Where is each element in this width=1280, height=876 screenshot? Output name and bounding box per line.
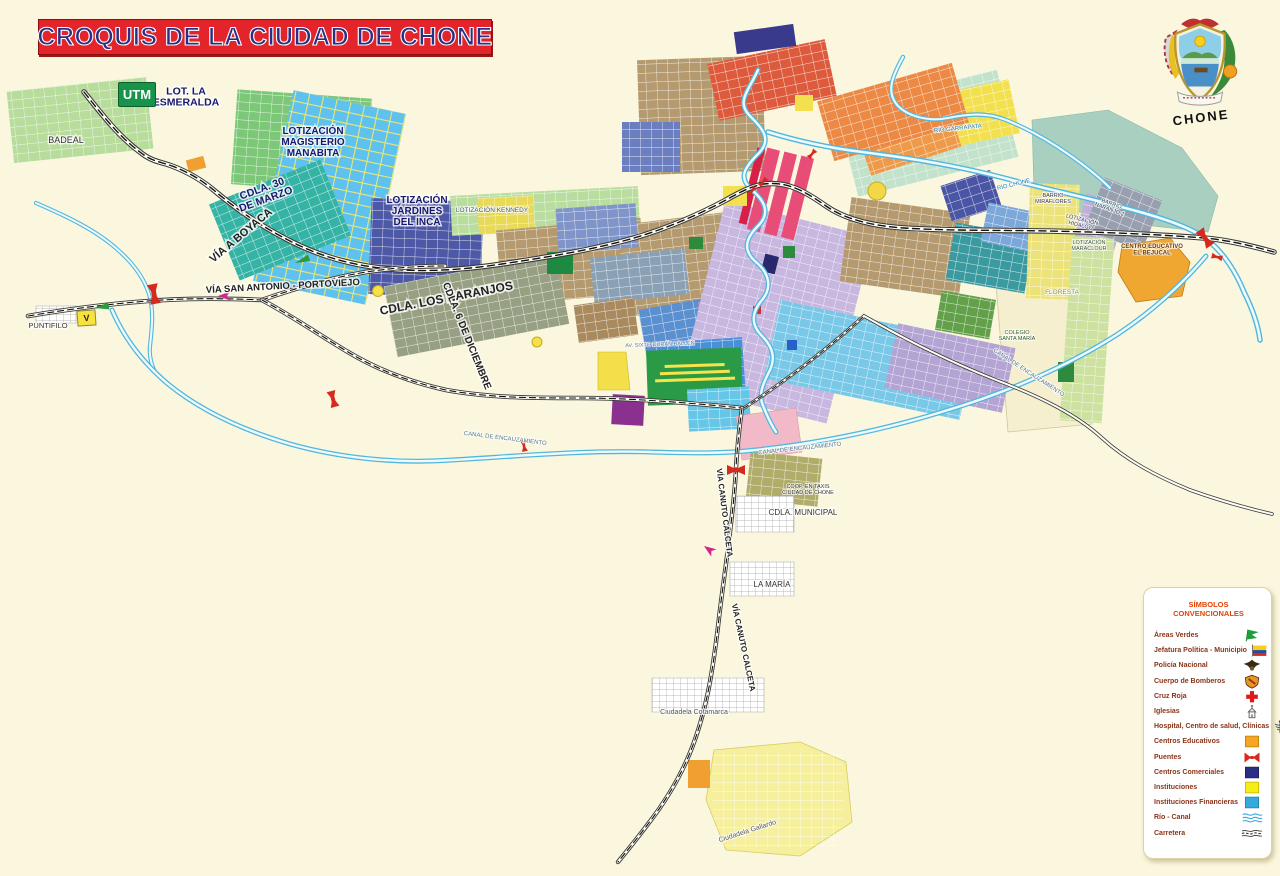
emblem-graphic bbox=[1165, 19, 1237, 106]
legend-item-label: Instituciones Financieras bbox=[1154, 799, 1238, 806]
legend-item-label: Cruz Roja bbox=[1154, 693, 1187, 700]
legend-item-label: Puentes bbox=[1154, 754, 1181, 761]
ecuador-flag-icon bbox=[1247, 643, 1269, 658]
map-label: BADEAL bbox=[48, 135, 84, 145]
direction-arrow-icon bbox=[701, 542, 716, 556]
legend-item: Hospital, Centro de salud, Clínicas bbox=[1154, 719, 1263, 734]
legend-item-label: Cuerpo de Bomberos bbox=[1154, 678, 1225, 685]
map-title-banner: CROQUIS DE LA CIUDAD DE CHONE bbox=[38, 19, 492, 55]
legend-item-label: Áreas Verdes bbox=[1154, 632, 1198, 639]
legend-item: Iglesias bbox=[1154, 704, 1263, 719]
blue-square-icon bbox=[1241, 795, 1263, 810]
legend-item-label: Río - Canal bbox=[1154, 814, 1191, 821]
map-poster: BADEALLOT. LAESMERALDALOTIZACIÓNMAGISTER… bbox=[0, 0, 1280, 876]
legend-title: SÍMBOLOS CONVENCIONALES bbox=[1154, 600, 1263, 618]
legend-item: Carretera bbox=[1154, 825, 1263, 840]
legend-item: Áreas Verdes bbox=[1154, 628, 1263, 643]
red-cross-icon bbox=[1241, 689, 1263, 704]
map-title: CROQUIS DE LA CIUDAD DE CHONE bbox=[37, 23, 492, 52]
map-label: Ciudadela Cotamarca bbox=[660, 709, 728, 716]
map-label: LOTIZACIÓNMAGISTERIOMANABITA bbox=[281, 124, 345, 159]
legend-item-label: Policía Nacional bbox=[1154, 662, 1208, 669]
orange-square-icon bbox=[1241, 734, 1263, 749]
map-label: CDLA. MUNICIPAL bbox=[769, 508, 838, 517]
legend-item-label: Instituciones bbox=[1154, 784, 1197, 791]
fire-crest-icon bbox=[1241, 674, 1263, 689]
v-marker: V bbox=[76, 309, 96, 326]
legend-item: Centros Educativos bbox=[1154, 734, 1263, 749]
legend-items: Áreas VerdesJefatura Política - Municipi… bbox=[1154, 628, 1263, 841]
blocks-layer bbox=[7, 24, 1190, 856]
legend-item: Centros Comerciales bbox=[1154, 765, 1263, 780]
legend-item: Instituciones bbox=[1154, 780, 1263, 795]
legend-item-label: Iglesias bbox=[1154, 708, 1180, 715]
church-icon bbox=[1241, 704, 1263, 719]
chone-coat-of-arms bbox=[1152, 13, 1248, 111]
utm-badge: UTM bbox=[118, 82, 156, 107]
map-label: CANAL DE ENCAUZAMIENTO bbox=[463, 431, 547, 447]
map-label: LA MARÍA bbox=[754, 580, 792, 589]
legend-item-label: Centros Educativos bbox=[1154, 738, 1220, 745]
caduceus-icon bbox=[1269, 719, 1280, 734]
legend-item-label: Centros Comerciales bbox=[1154, 769, 1224, 776]
map-label: COOP. EN TAXISCIUDAD DE CHONE bbox=[782, 484, 834, 496]
map-label: LOTIZACIÓNJARDINESDEL INCA bbox=[386, 193, 447, 228]
legend-panel: SÍMBOLOS CONVENCIONALES Áreas VerdesJefa… bbox=[1143, 587, 1272, 859]
map-label: PUNTIFILO bbox=[28, 321, 67, 330]
legend-item-label: Hospital, Centro de salud, Clínicas bbox=[1154, 723, 1269, 730]
bridge-icon bbox=[1241, 750, 1263, 765]
bridge-icon bbox=[327, 390, 340, 408]
green-flag-icon bbox=[1241, 628, 1263, 643]
legend-item: Policía Nacional bbox=[1154, 658, 1263, 673]
navy-square-icon bbox=[1241, 765, 1263, 780]
legend-item: Río - Canal bbox=[1154, 810, 1263, 825]
map-label: LOTIZACIÓNMARACLOUR bbox=[1071, 239, 1106, 252]
city-map: BADEALLOT. LAESMERALDALOTIZACIÓNMAGISTER… bbox=[0, 0, 1280, 876]
legend-item: Jefatura Política - Municipio bbox=[1154, 643, 1263, 658]
map-label: LOT. LAESMERALDA bbox=[153, 85, 220, 108]
yellow-square-icon bbox=[1241, 780, 1263, 795]
map-label: FLORESTA bbox=[1045, 289, 1079, 296]
waves-icon bbox=[1241, 810, 1263, 825]
police-eagle-icon bbox=[1241, 658, 1263, 673]
dashed-road-icon bbox=[1241, 826, 1263, 841]
legend-item: Cruz Roja bbox=[1154, 689, 1263, 704]
legend-item-label: Jefatura Política - Municipio bbox=[1154, 647, 1247, 654]
legend-item: Puentes bbox=[1154, 750, 1263, 765]
map-label: LOTIZACIÓN KENNEDY bbox=[456, 205, 529, 214]
legend-item: Cuerpo de Bomberos bbox=[1154, 674, 1263, 689]
legend-item: Instituciones Financieras bbox=[1154, 795, 1263, 810]
legend-item-label: Carretera bbox=[1154, 830, 1185, 837]
